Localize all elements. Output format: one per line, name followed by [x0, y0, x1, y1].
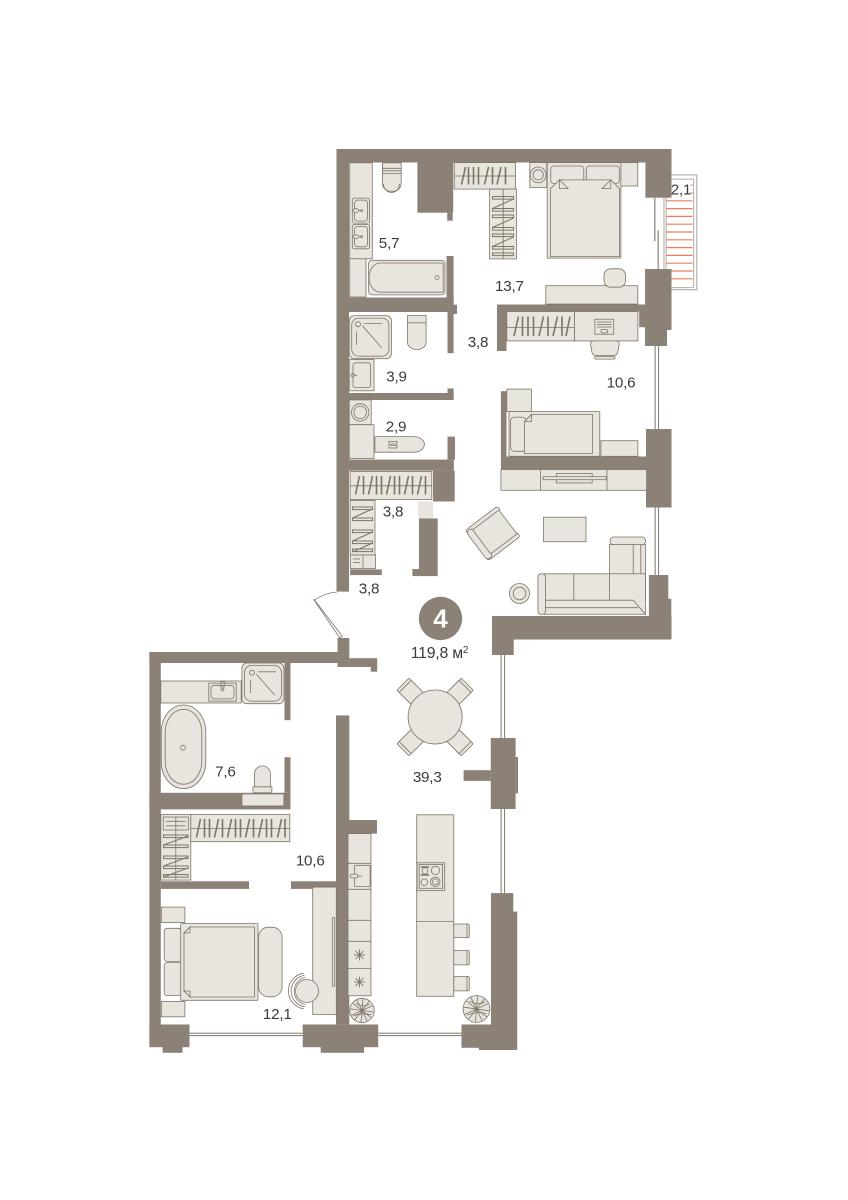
svg-text:3,8: 3,8 — [359, 581, 380, 598]
svg-text:3,8: 3,8 — [468, 334, 489, 351]
svg-text:2,9: 2,9 — [386, 419, 407, 436]
svg-text:2,1: 2,1 — [671, 182, 692, 199]
svg-text:3,9: 3,9 — [386, 369, 407, 386]
svg-text:10,6: 10,6 — [296, 853, 325, 870]
svg-text:39,3: 39,3 — [413, 769, 442, 786]
svg-text:13,7: 13,7 — [495, 278, 524, 295]
svg-text:4: 4 — [433, 604, 448, 634]
svg-text:12,1: 12,1 — [263, 1006, 292, 1023]
svg-text:3,8: 3,8 — [383, 504, 404, 521]
svg-text:5,7: 5,7 — [379, 235, 400, 252]
svg-text:7,6: 7,6 — [215, 764, 236, 781]
svg-text:119,8 м2: 119,8 м2 — [411, 645, 469, 662]
svg-text:10,6: 10,6 — [607, 375, 636, 392]
